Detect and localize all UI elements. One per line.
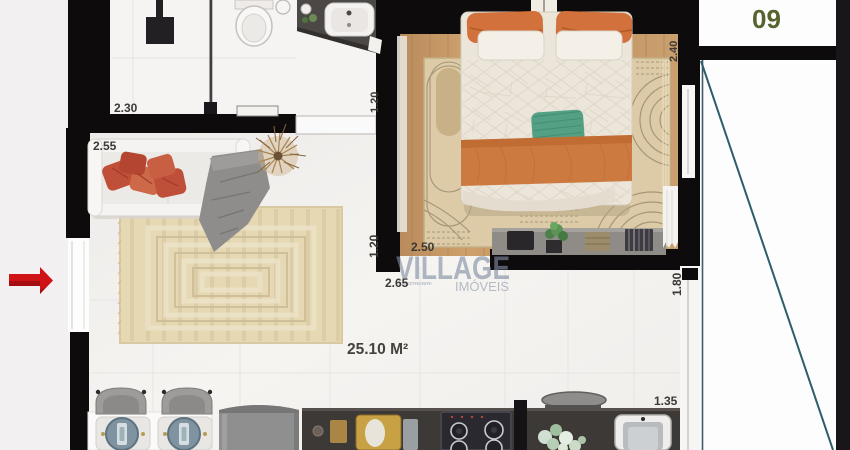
svg-text:IMÓVEIS: IMÓVEIS	[455, 279, 509, 294]
svg-text:1.35: 1.35	[654, 394, 678, 408]
svg-text:2.30: 2.30	[114, 101, 138, 115]
svg-text:2.50: 2.50	[411, 240, 435, 254]
svg-text:09: 09	[752, 4, 781, 34]
svg-text:1.20: 1.20	[369, 92, 381, 113]
svg-text:25.10 M²: 25.10 M²	[347, 341, 408, 358]
svg-text:2.65: 2.65	[385, 276, 409, 290]
svg-text:2.40: 2.40	[668, 41, 680, 62]
svg-text:2.55: 2.55	[93, 139, 117, 153]
svg-text:1.80: 1.80	[670, 272, 684, 296]
svg-text:1.20: 1.20	[367, 234, 381, 258]
